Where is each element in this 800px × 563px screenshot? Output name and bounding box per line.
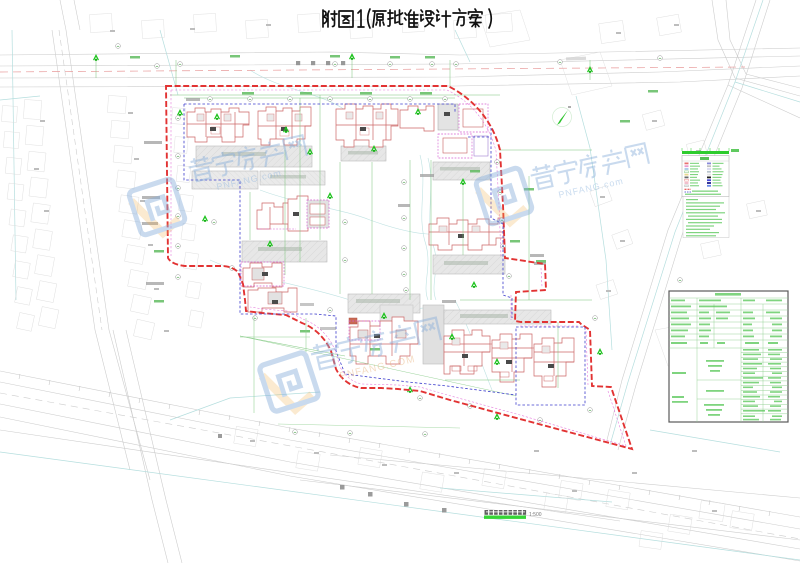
svg-text:1:500: 1:500: [529, 512, 542, 518]
